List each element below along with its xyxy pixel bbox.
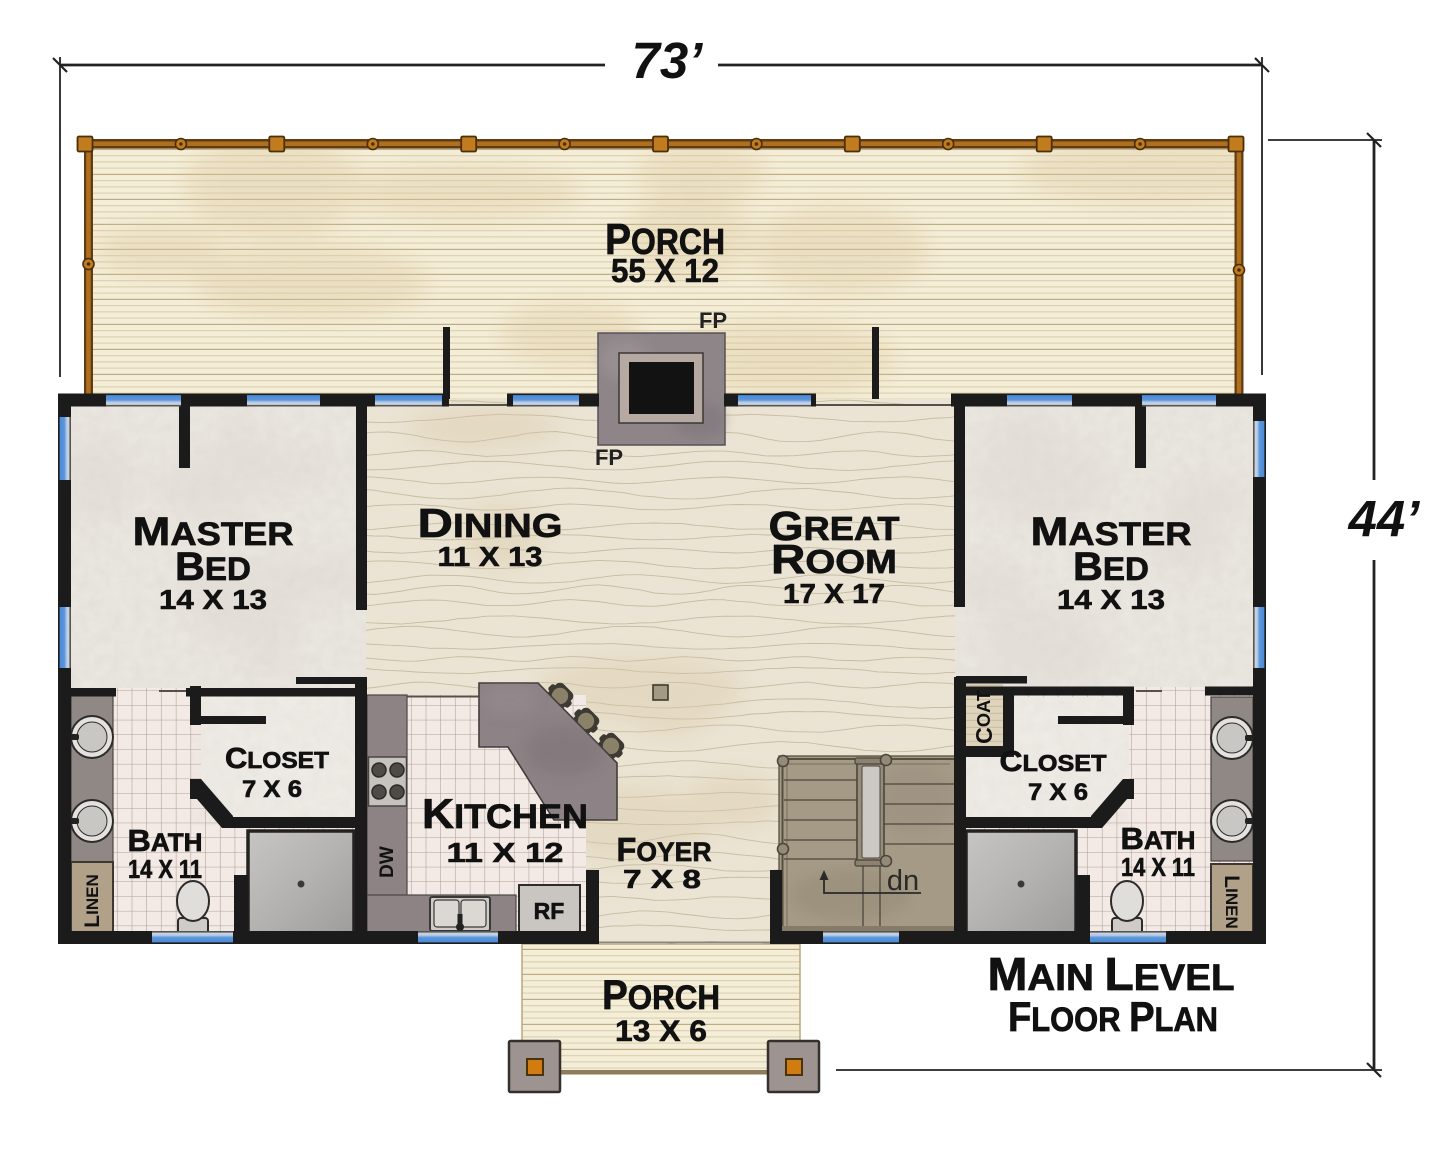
- svg-text:LINEN: LINEN: [81, 874, 104, 927]
- svg-text:DW: DW: [377, 846, 398, 878]
- svg-text:14 X 13: 14 X 13: [1057, 584, 1165, 615]
- svg-text:KITCHEN: KITCHEN: [422, 790, 588, 837]
- svg-text:DINING: DINING: [418, 500, 563, 546]
- svg-text:7 X 6: 7 X 6: [242, 776, 302, 803]
- svg-text:11 X 12: 11 X 12: [447, 837, 564, 868]
- svg-text:14 X 13: 14 X 13: [159, 584, 267, 615]
- svg-text:BED: BED: [1073, 545, 1149, 589]
- svg-text:ROOM: ROOM: [771, 536, 897, 582]
- svg-text:RF: RF: [534, 898, 565, 924]
- svg-text:COAT: COAT: [971, 690, 997, 744]
- svg-text:BATH: BATH: [128, 823, 203, 858]
- svg-text:11 X 13: 11 X 13: [438, 541, 543, 572]
- svg-text:BATH: BATH: [1121, 821, 1196, 856]
- svg-text:FP: FP: [699, 308, 727, 333]
- svg-text:13 X 6: 13 X 6: [615, 1015, 707, 1048]
- svg-text:CLOSET: CLOSET: [225, 743, 329, 775]
- svg-text:PORCH: PORCH: [602, 971, 720, 1018]
- svg-text:FLOOR PLAN: FLOOR PLAN: [1008, 993, 1218, 1040]
- svg-text:55 X 12: 55 X 12: [611, 252, 719, 289]
- svg-text:7 X 6: 7 X 6: [1028, 779, 1088, 806]
- svg-text:7 X 8: 7 X 8: [623, 864, 701, 894]
- svg-text:LINEN: LINEN: [1221, 875, 1244, 928]
- svg-text:BED: BED: [175, 545, 251, 589]
- svg-text:dn: dn: [887, 865, 919, 897]
- svg-text:FOYER: FOYER: [617, 831, 712, 868]
- svg-text:44’: 44’: [1348, 490, 1421, 547]
- svg-text:CLOSET: CLOSET: [1000, 746, 1107, 778]
- svg-text:14 X 11: 14 X 11: [1121, 852, 1195, 882]
- svg-text:17 X 17: 17 X 17: [783, 578, 885, 609]
- svg-text:14 X 11: 14 X 11: [128, 854, 202, 884]
- svg-text:FP: FP: [595, 445, 623, 470]
- svg-text:MASTER: MASTER: [133, 510, 294, 554]
- svg-text:73’: 73’: [632, 32, 704, 89]
- svg-text:MASTER: MASTER: [1031, 510, 1192, 554]
